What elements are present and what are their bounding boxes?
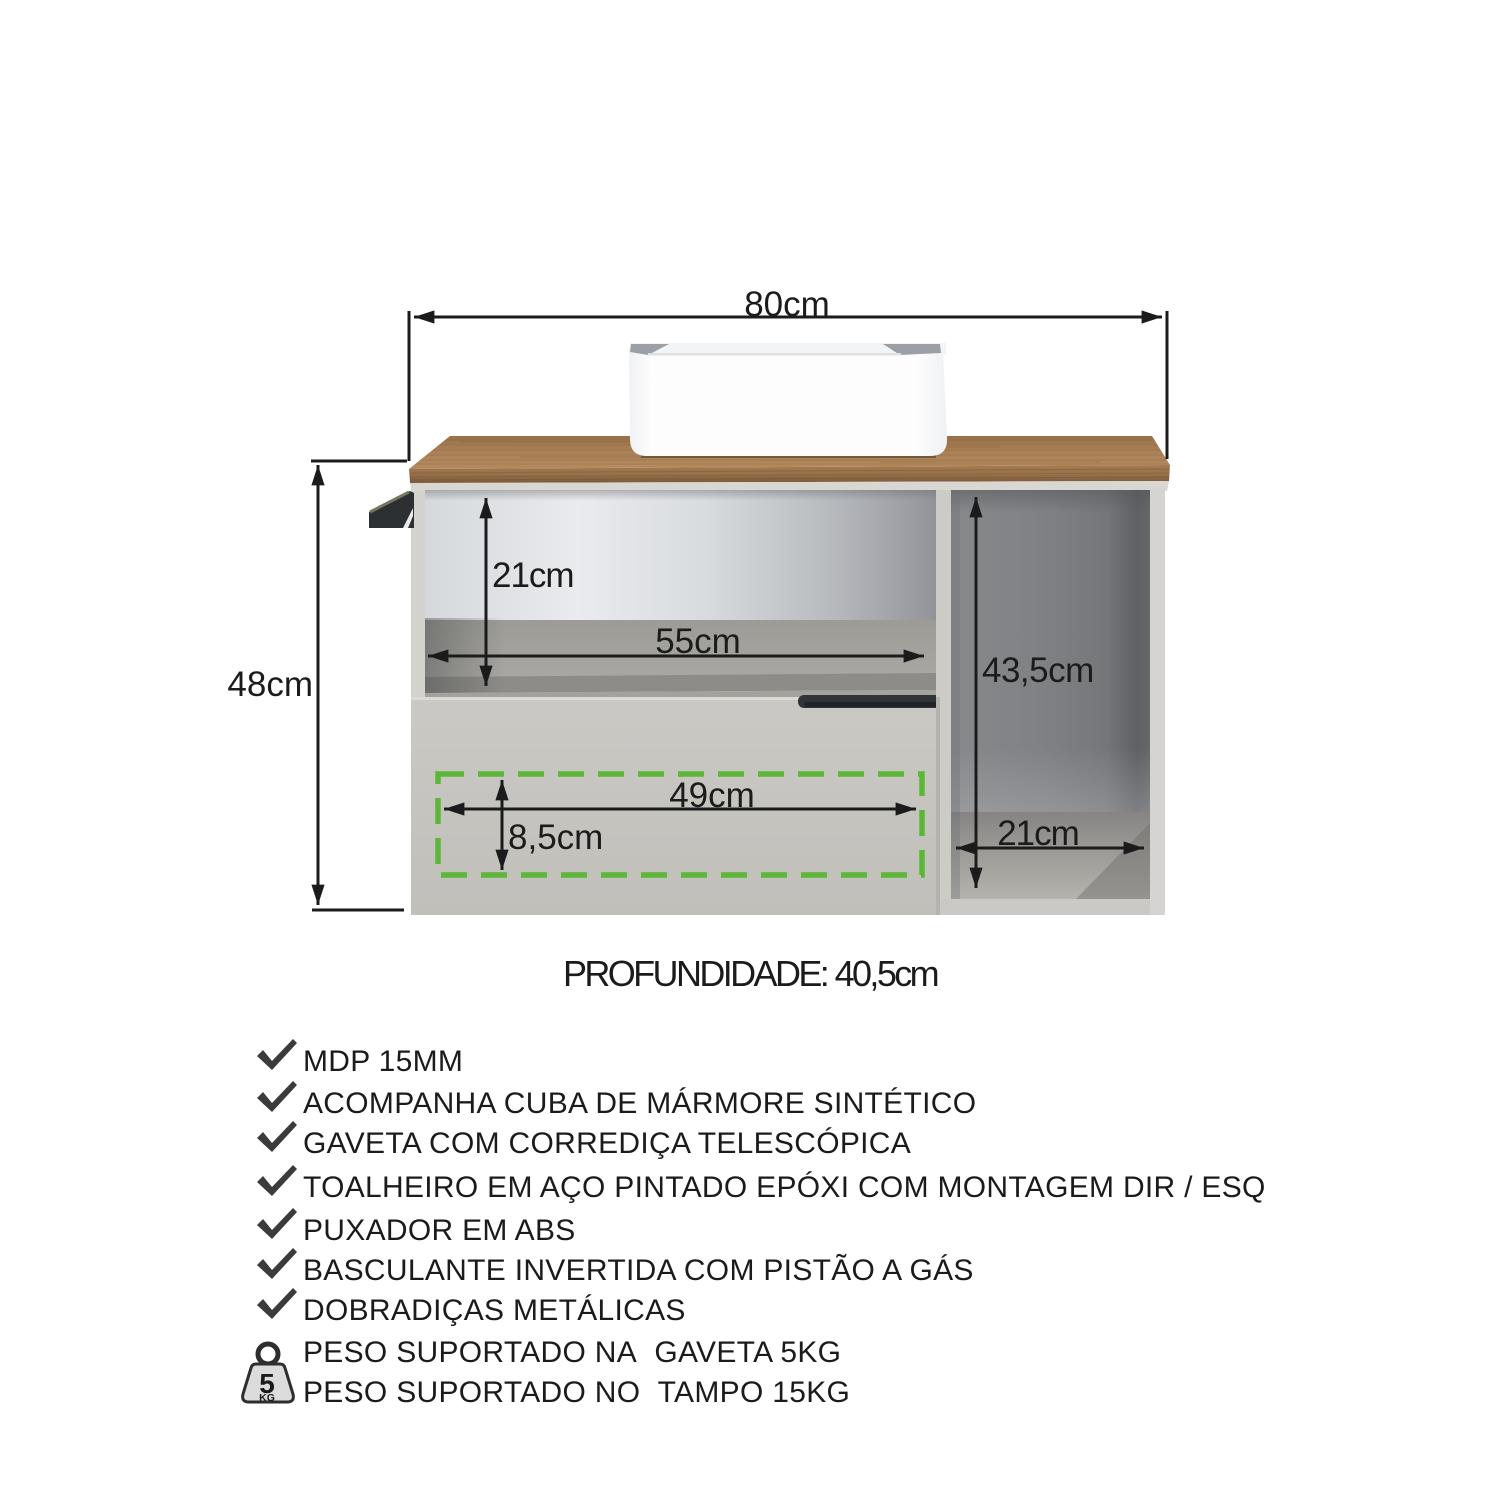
svg-text:43,5cm: 43,5cm <box>982 651 1094 690</box>
svg-text:55cm: 55cm <box>655 622 741 661</box>
svg-text:21cm: 21cm <box>492 556 574 595</box>
svg-text:GAVETA COM CORREDIÇA TELESCÓPI: GAVETA COM CORREDIÇA TELESCÓPICA <box>303 1127 911 1160</box>
svg-text:PESO SUPORTADO NA GAVETA 5KG: PESO SUPORTADO NA GAVETA 5KG <box>303 1336 841 1369</box>
svg-text:BASCULANTE INVERTIDA COM PISTÃ: BASCULANTE INVERTIDA COM PISTÃO A GÁS <box>303 1253 974 1287</box>
svg-text:DOBRADIÇAS METÁLICAS: DOBRADIÇAS METÁLICAS <box>303 1294 686 1327</box>
svg-text:48cm: 48cm <box>227 665 313 704</box>
svg-text:ACOMPANHA CUBA DE MÁRMORE SINT: ACOMPANHA CUBA DE MÁRMORE SINTÉTICO <box>303 1087 976 1120</box>
svg-text:PUXADOR EM ABS: PUXADOR EM ABS <box>303 1214 576 1247</box>
svg-text:21cm: 21cm <box>997 814 1079 853</box>
svg-text:PROFUNDIDADE: 40,5cm: PROFUNDIDADE: 40,5cm <box>563 953 938 994</box>
svg-text:8,5cm: 8,5cm <box>508 818 603 857</box>
svg-text:KG: KG <box>259 1392 275 1404</box>
svg-text:49cm: 49cm <box>669 776 755 815</box>
svg-text:MDP 15MM: MDP 15MM <box>303 1045 463 1078</box>
svg-text:TOALHEIRO EM AÇO PINTADO EPÓXI: TOALHEIRO EM AÇO PINTADO EPÓXI COM MONTA… <box>303 1171 1266 1204</box>
svg-text:PESO SUPORTADO NO TAMPO 15KG: PESO SUPORTADO NO TAMPO 15KG <box>303 1376 850 1409</box>
svg-text:80cm: 80cm <box>744 285 830 324</box>
